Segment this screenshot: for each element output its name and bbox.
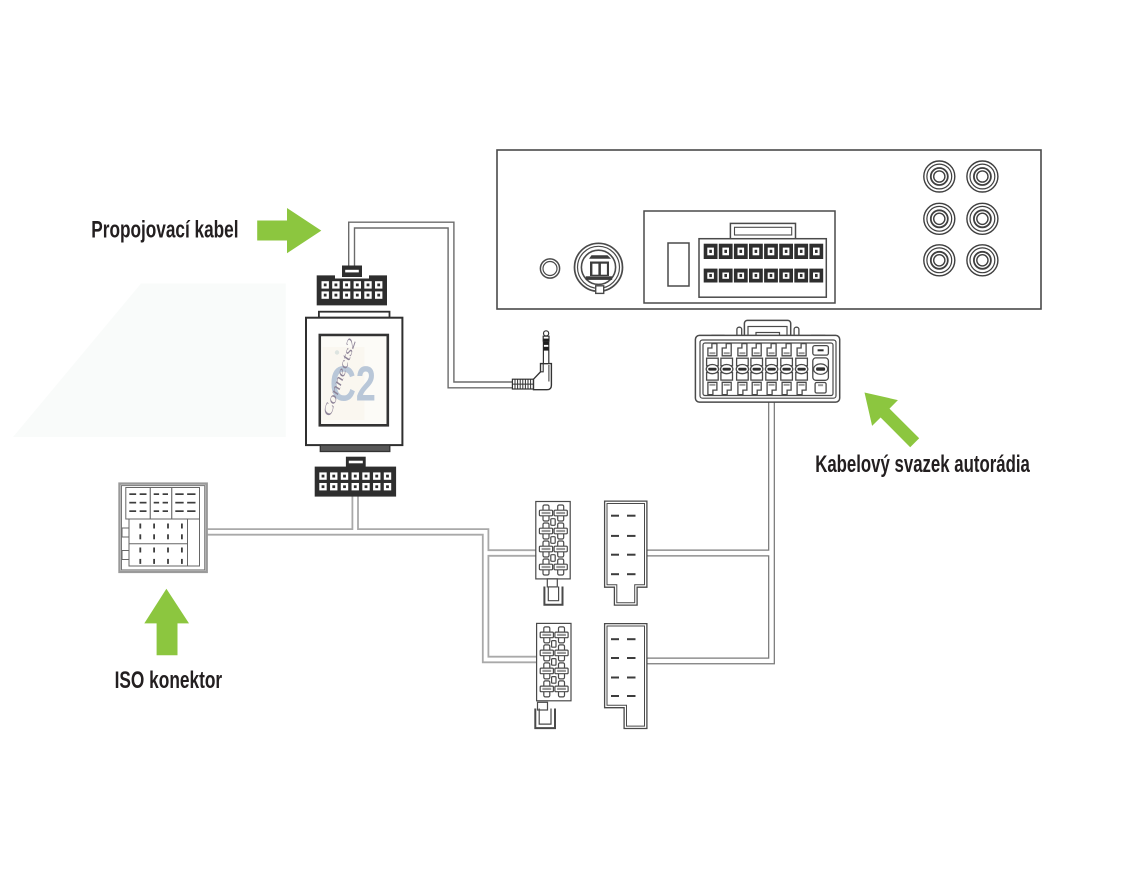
svg-text:ISO konektor: ISO konektor xyxy=(115,667,223,693)
svg-text:Propojovací kabel: Propojovací kabel xyxy=(91,217,238,243)
svg-text:Kabelový svazek autorádia: Kabelový svazek autorádia xyxy=(815,451,1030,478)
